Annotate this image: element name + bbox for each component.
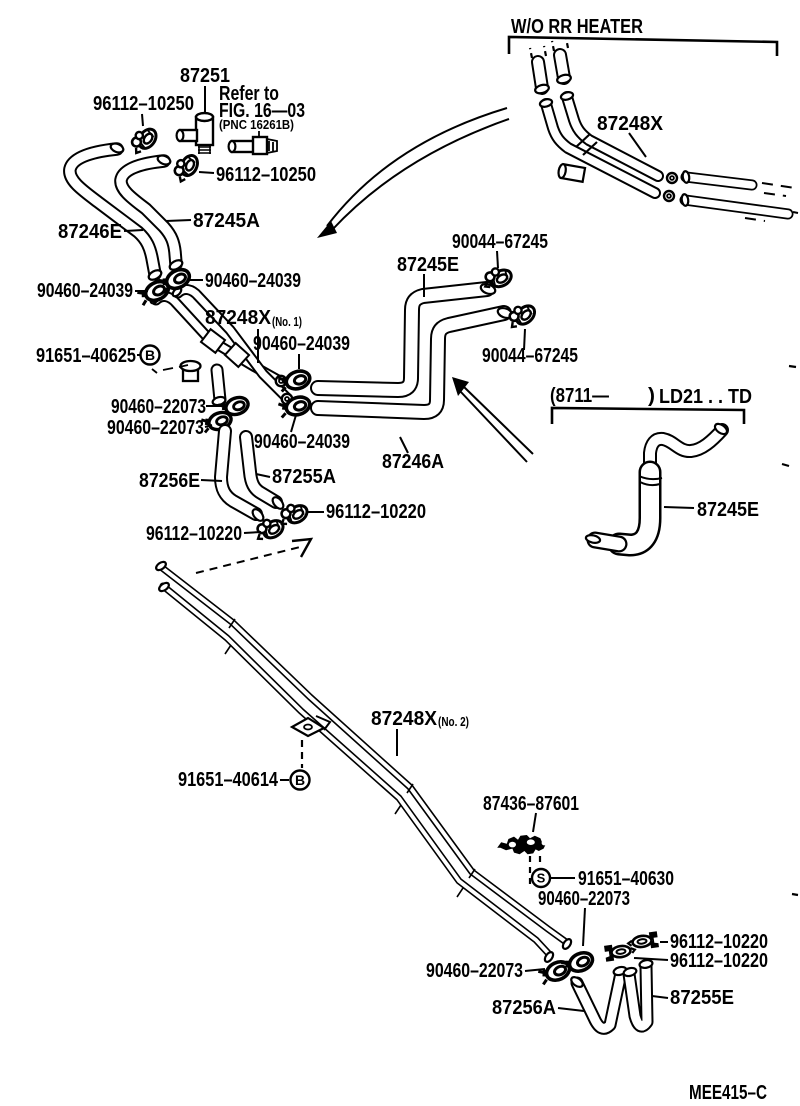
- svg-text:90044–67245: 90044–67245: [452, 231, 548, 253]
- svg-text:90460–24039: 90460–24039: [37, 280, 133, 302]
- svg-text:W/O RR HEATER: W/O RR HEATER: [511, 16, 643, 38]
- svg-text:87246E: 87246E: [58, 221, 122, 243]
- svg-text:96112–10250: 96112–10250: [93, 93, 194, 115]
- svg-text:): ): [648, 385, 655, 407]
- svg-text:87436–87601: 87436–87601: [483, 793, 579, 815]
- svg-text:LD21 . . TD: LD21 . . TD: [659, 386, 752, 408]
- svg-text:(8711—: (8711—: [550, 385, 609, 407]
- svg-text:87248X: 87248X: [205, 307, 272, 329]
- svg-text:B: B: [145, 347, 155, 363]
- svg-text:87255A: 87255A: [272, 466, 336, 488]
- svg-text:96112–10220: 96112–10220: [146, 523, 242, 545]
- svg-text:96112–10220: 96112–10220: [326, 501, 426, 523]
- svg-text:96112–10250: 96112–10250: [216, 164, 316, 186]
- svg-text:87245A: 87245A: [193, 210, 260, 232]
- svg-text:87248X: 87248X: [597, 113, 664, 135]
- svg-text:90460–22073: 90460–22073: [538, 888, 630, 910]
- svg-text:90460–22073: 90460–22073: [111, 396, 206, 418]
- svg-text:S: S: [537, 871, 546, 886]
- svg-text:90460–22073: 90460–22073: [426, 960, 523, 982]
- svg-text:(PNC 16261B): (PNC 16261B): [219, 117, 294, 132]
- svg-text:90460–24039: 90460–24039: [254, 431, 350, 453]
- svg-text:91651–40630: 91651–40630: [578, 868, 674, 890]
- svg-text:87245E: 87245E: [397, 254, 459, 276]
- svg-text:(No. 1): (No. 1): [272, 315, 302, 329]
- svg-text:B: B: [295, 772, 305, 788]
- svg-text:90044–67245: 90044–67245: [482, 345, 578, 367]
- svg-text:MEE415–C: MEE415–C: [689, 1082, 767, 1104]
- svg-text:90460–22073: 90460–22073: [107, 417, 204, 439]
- svg-text:(No. 2): (No. 2): [438, 715, 469, 729]
- svg-text:90460–24039: 90460–24039: [205, 270, 301, 292]
- svg-text:87245E: 87245E: [697, 499, 759, 521]
- svg-text:87256E: 87256E: [139, 470, 200, 492]
- svg-text:87248X: 87248X: [371, 708, 438, 730]
- svg-text:96112–10220: 96112–10220: [670, 950, 768, 972]
- svg-text:90460–24039: 90460–24039: [253, 333, 350, 355]
- svg-text:87256A: 87256A: [492, 997, 556, 1019]
- svg-text:87246A: 87246A: [382, 451, 444, 473]
- svg-text:91651–40614: 91651–40614: [178, 769, 279, 791]
- svg-text:91651–40625: 91651–40625: [36, 345, 136, 367]
- svg-text:87255E: 87255E: [670, 987, 734, 1009]
